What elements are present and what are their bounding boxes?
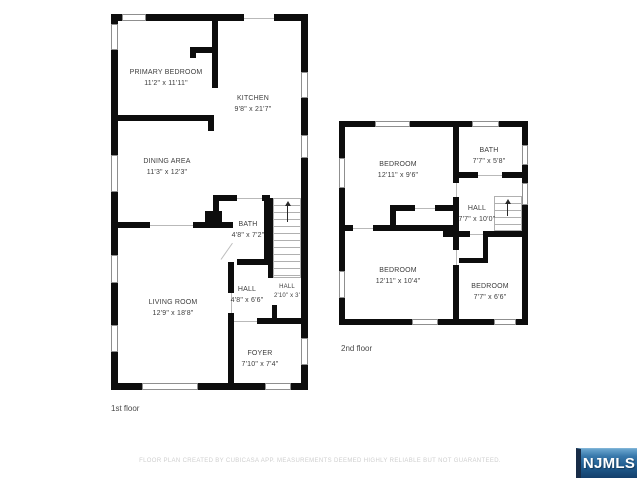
room-name: FOYER xyxy=(242,348,279,359)
door-opening xyxy=(453,250,459,265)
wall xyxy=(339,121,528,127)
door-opening xyxy=(244,14,274,21)
floor-label-2nd: 2nd floor xyxy=(341,344,372,353)
room-label-living-room: LIVING ROOM 12'9" x 18'8" xyxy=(149,297,198,319)
floor-label-1st: 1st floor xyxy=(111,404,139,413)
window xyxy=(472,121,499,127)
room-name: LIVING ROOM xyxy=(149,297,198,308)
room-dims: 7'7" x 5'8" xyxy=(473,156,506,167)
wall xyxy=(272,305,277,318)
room-name: KITCHEN xyxy=(235,93,272,104)
stairs-direction-line xyxy=(507,204,508,216)
wall xyxy=(257,318,301,324)
window xyxy=(339,271,345,298)
wall xyxy=(301,14,308,390)
chimney-block xyxy=(205,211,222,222)
room-label-hall: HALL 4'8" x 6'6" xyxy=(231,284,264,306)
wall xyxy=(190,47,196,58)
room-name: BEDROOM xyxy=(378,159,418,170)
wall xyxy=(237,259,270,265)
window xyxy=(522,145,528,165)
room-label-bedroom-2: BEDROOM 12'11" x 10'4" xyxy=(376,265,421,287)
room-name: DINING AREA xyxy=(143,156,190,167)
door-opening xyxy=(453,183,459,197)
stairs-up-arrow-icon xyxy=(505,199,511,204)
room-dims: 4'8" x 7'2" xyxy=(232,230,265,241)
wall xyxy=(453,265,459,325)
wall xyxy=(228,313,234,390)
room-dims: 9'8" x 21'7" xyxy=(235,104,272,115)
window xyxy=(375,121,410,127)
room-label-hall-small: HALL 2'10" x 3' xyxy=(274,283,300,301)
stairs xyxy=(494,196,522,231)
door-opening xyxy=(470,231,483,237)
room-name: HALL xyxy=(231,284,264,295)
room-dims: 7'7" x 6'6" xyxy=(471,292,509,303)
window xyxy=(301,135,308,158)
wall xyxy=(208,115,214,131)
njmls-logo: NJMLS xyxy=(576,448,637,478)
door-opening xyxy=(353,225,373,231)
room-label-bath-2: BATH 7'7" x 5'8" xyxy=(473,145,506,167)
njmls-logo-text: NJMLS xyxy=(583,455,635,472)
window xyxy=(301,338,308,365)
window xyxy=(265,383,291,390)
room-name: BEDROOM xyxy=(376,265,421,276)
window xyxy=(111,24,118,50)
door-swing-line xyxy=(221,243,233,260)
room-dims: 12'9" x 18'8" xyxy=(149,308,198,319)
room-name: PRIMARY BEDROOM xyxy=(130,67,203,78)
room-name: HALL xyxy=(274,283,300,292)
door-opening xyxy=(150,222,193,228)
room-name: BATH xyxy=(473,145,506,156)
wall xyxy=(502,172,528,178)
room-dims: 7'7" x 10'0" xyxy=(459,214,496,225)
door-opening xyxy=(237,195,262,201)
stairs-up-arrow-icon xyxy=(285,201,291,206)
room-label-foyer: FOYER 7'10" x 7'4" xyxy=(242,348,279,370)
window xyxy=(522,183,528,205)
stairs-direction-line xyxy=(287,206,288,222)
room-label-bedroom-1: BEDROOM 12'11" x 9'6" xyxy=(378,159,418,181)
second-floor-plan: BEDROOM 12'11" x 9'6" BATH 7'7" x 5'8" H… xyxy=(339,121,528,325)
door-opening xyxy=(234,318,257,324)
window xyxy=(339,158,345,188)
room-dims: 11'2" x 11'11" xyxy=(130,78,203,89)
room-dims: 2'10" x 3' xyxy=(274,292,300,301)
room-name: HALL xyxy=(459,203,496,214)
room-label-bedroom-3: BEDROOM 7'7" x 6'6" xyxy=(471,281,509,303)
wall xyxy=(453,172,478,178)
first-floor-plan: PRIMARY BEDROOM 11'2" x 11'11" KITCHEN 9… xyxy=(111,14,308,390)
room-dims: 7'10" x 7'4" xyxy=(242,359,279,370)
window xyxy=(111,325,118,352)
window xyxy=(142,383,198,390)
disclaimer-text: FLOOR PLAN CREATED BY CUBICASA APP. MEAS… xyxy=(0,458,640,464)
wall xyxy=(345,225,353,231)
window xyxy=(494,319,516,325)
window xyxy=(122,14,146,21)
room-name: BATH xyxy=(232,219,265,230)
wall xyxy=(458,258,488,263)
window xyxy=(111,255,118,283)
room-label-hall-2: HALL 7'7" x 10'0" xyxy=(459,203,496,225)
floor-plan-canvas: PRIMARY BEDROOM 11'2" x 11'11" KITCHEN 9… xyxy=(0,0,640,480)
door-opening xyxy=(415,205,435,211)
window xyxy=(111,155,118,192)
room-label-kitchen: KITCHEN 9'8" x 21'7" xyxy=(235,93,272,115)
room-label-bath: BATH 4'8" x 7'2" xyxy=(232,219,265,241)
stairs xyxy=(273,198,301,278)
door-opening xyxy=(478,172,502,178)
wall xyxy=(483,231,528,237)
wall xyxy=(111,222,150,228)
room-dims: 12'11" x 10'4" xyxy=(376,276,421,287)
room-dims: 11'3" x 12'3" xyxy=(143,167,190,178)
room-label-dining-area: DINING AREA 11'3" x 12'3" xyxy=(143,156,190,178)
room-name: BEDROOM xyxy=(471,281,509,292)
window xyxy=(412,319,438,325)
room-dims: 12'11" x 9'6" xyxy=(378,170,418,181)
wall xyxy=(193,222,233,228)
window xyxy=(301,72,308,98)
wall xyxy=(443,231,470,237)
wall xyxy=(453,121,459,172)
room-label-primary-bedroom: PRIMARY BEDROOM 11'2" x 11'11" xyxy=(130,67,203,89)
wall xyxy=(111,115,214,121)
room-dims: 4'8" x 6'6" xyxy=(231,295,264,306)
